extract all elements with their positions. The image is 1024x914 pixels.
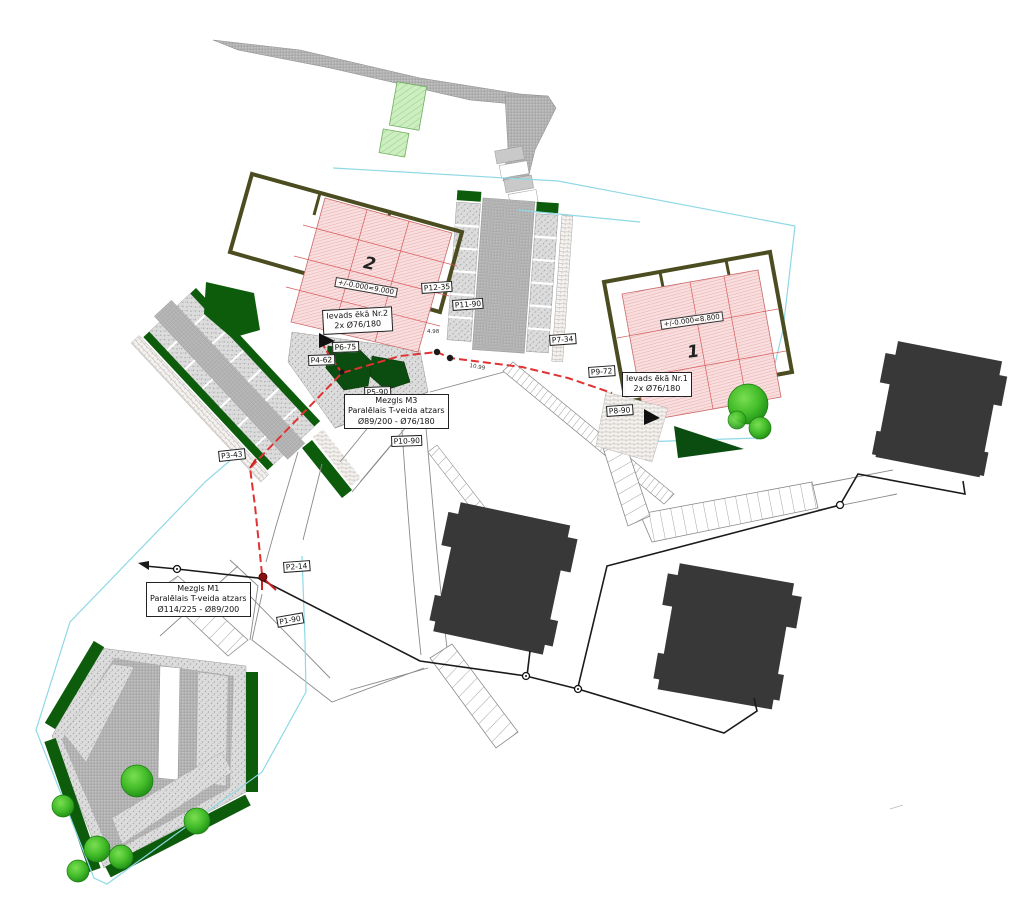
marker-p4: P4-62: [308, 354, 335, 366]
marker-p2: P2-14: [283, 560, 310, 573]
node-m3-size: Ø89/200 - Ø76/180: [348, 417, 445, 427]
marker-p6: P6-75: [332, 341, 359, 353]
site-plan-drawing: [0, 0, 1024, 914]
green-island-2: [379, 129, 409, 157]
marker-p11: P11-90: [452, 298, 484, 311]
node-m1-size: Ø114/225 - Ø89/200: [150, 605, 247, 615]
green-island-1: [389, 82, 426, 131]
green-strip: [457, 190, 482, 202]
site-plan: P12-35 P11-90 P7-34 P9-72 P8-90 P6-75 P4…: [0, 0, 1024, 914]
node-m3-desc: Paralēlais T-veida atzars: [348, 406, 445, 416]
building-1-entry-line2: 2x Ø76/180: [626, 384, 688, 394]
node-m1-desc: Paralēlais T-veida atzars: [150, 594, 247, 604]
line-arrow: [138, 561, 149, 570]
node-m3-title: Mezgls M3: [348, 396, 445, 406]
existing-building-middle: [423, 500, 580, 657]
node-m3-label: Mezgls M3 Paralēlais T-veida atzars Ø89/…: [344, 394, 449, 429]
existing-building-northeast: [866, 339, 1010, 478]
node-m1-title: Mezgls M1: [150, 584, 247, 594]
building-1-entry-label: Ievads ēkā Nr.1 2x Ø76/180: [622, 372, 692, 397]
node-m1-point: [259, 573, 267, 581]
parking-row-m1-east: [430, 644, 518, 748]
building-1-entry-line1: Ievads ēkā Nr.1: [626, 374, 688, 384]
node-m3-point: [340, 370, 345, 375]
parking-lot-southwest: [50, 644, 252, 872]
existing-building-southeast: [648, 561, 804, 711]
building-2-entry-label: Ievads ēkā Nr.2 2x Ø76/180: [322, 306, 393, 334]
green-triangle: [674, 426, 744, 458]
pipe-node: [434, 349, 440, 355]
pipe-node: [447, 355, 453, 361]
building-2-entry-line2: 2x Ø76/180: [327, 319, 389, 333]
marker-p8: P8-90: [606, 404, 633, 417]
marker-p9: P9-72: [588, 365, 615, 378]
dimension-1: 4.98: [427, 329, 439, 335]
marker-p10: P10-90: [391, 435, 423, 447]
top-road: [213, 40, 556, 208]
green-strip: [536, 202, 559, 214]
node-m1-label: Mezgls M1 Paralēlais T-veida atzars Ø114…: [146, 582, 251, 617]
marker-p7: P7-34: [549, 333, 576, 346]
marker-p12: P12-35: [421, 281, 453, 294]
